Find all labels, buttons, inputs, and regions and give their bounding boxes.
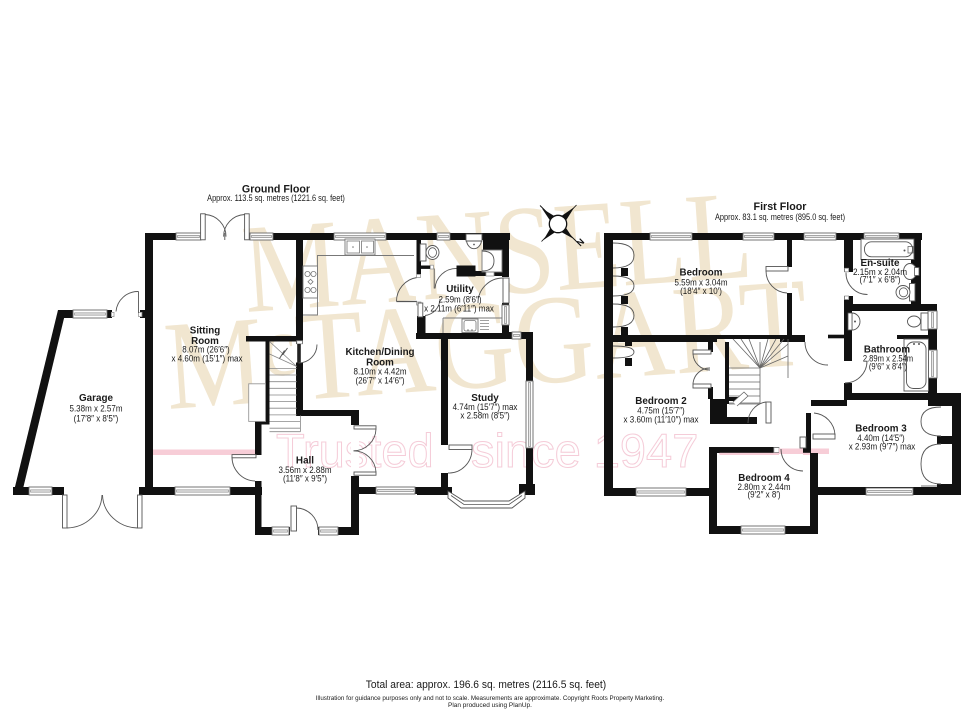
svg-text:(11′8″ x 9′5″): (11′8″ x 9′5″) bbox=[283, 474, 327, 485]
svg-text:Approx. 113.5 sq. metres (1221: Approx. 113.5 sq. metres (1221.6 sq. fee… bbox=[207, 193, 345, 203]
svg-text:Garage: Garage bbox=[79, 393, 114, 404]
svg-text:x 4.60m (15′1″) max: x 4.60m (15′1″) max bbox=[172, 354, 243, 365]
svg-text:(9′6″ x 8′4″): (9′6″ x 8′4″) bbox=[869, 362, 907, 372]
svg-text:Utility: Utility bbox=[446, 284, 474, 295]
svg-text:since 1947: since 1947 bbox=[471, 424, 698, 477]
svg-text:(9′2″ x 8′): (9′2″ x 8′) bbox=[748, 490, 781, 501]
svg-text:Sitting: Sitting bbox=[190, 326, 220, 337]
svg-text:x 3.60m (11′10″) max: x 3.60m (11′10″) max bbox=[624, 414, 699, 425]
svg-text:Total area: approx. 196.6 sq.: Total area: approx. 196.6 sq. metres (21… bbox=[366, 679, 606, 691]
svg-text:(18′4″ x 10′): (18′4″ x 10′) bbox=[680, 286, 722, 297]
svg-text:Kitchen/Dining: Kitchen/Dining bbox=[345, 347, 414, 358]
svg-text:(7′1″ x 6′8″): (7′1″ x 6′8″) bbox=[859, 275, 900, 285]
svg-text:x 2.58m (8′5″): x 2.58m (8′5″) bbox=[460, 411, 509, 422]
svg-text:(17′8″ x 8′5″): (17′8″ x 8′5″) bbox=[74, 414, 119, 425]
svg-text:x 2.11m (6′11″) max: x 2.11m (6′11″) max bbox=[424, 304, 494, 315]
svg-text:Approx. 83.1 sq. metres (895.0: Approx. 83.1 sq. metres (895.0 sq. feet) bbox=[715, 212, 845, 222]
svg-text:x 2.93m (9′7″) max: x 2.93m (9′7″) max bbox=[849, 442, 916, 453]
svg-text:(26′7″ x 14′6″): (26′7″ x 14′6″) bbox=[355, 375, 404, 386]
svg-text:Illustration for guidance purp: Illustration for guidance purposes only … bbox=[316, 695, 665, 702]
svg-text:Plan produced using PlanUp.: Plan produced using PlanUp. bbox=[448, 702, 532, 709]
